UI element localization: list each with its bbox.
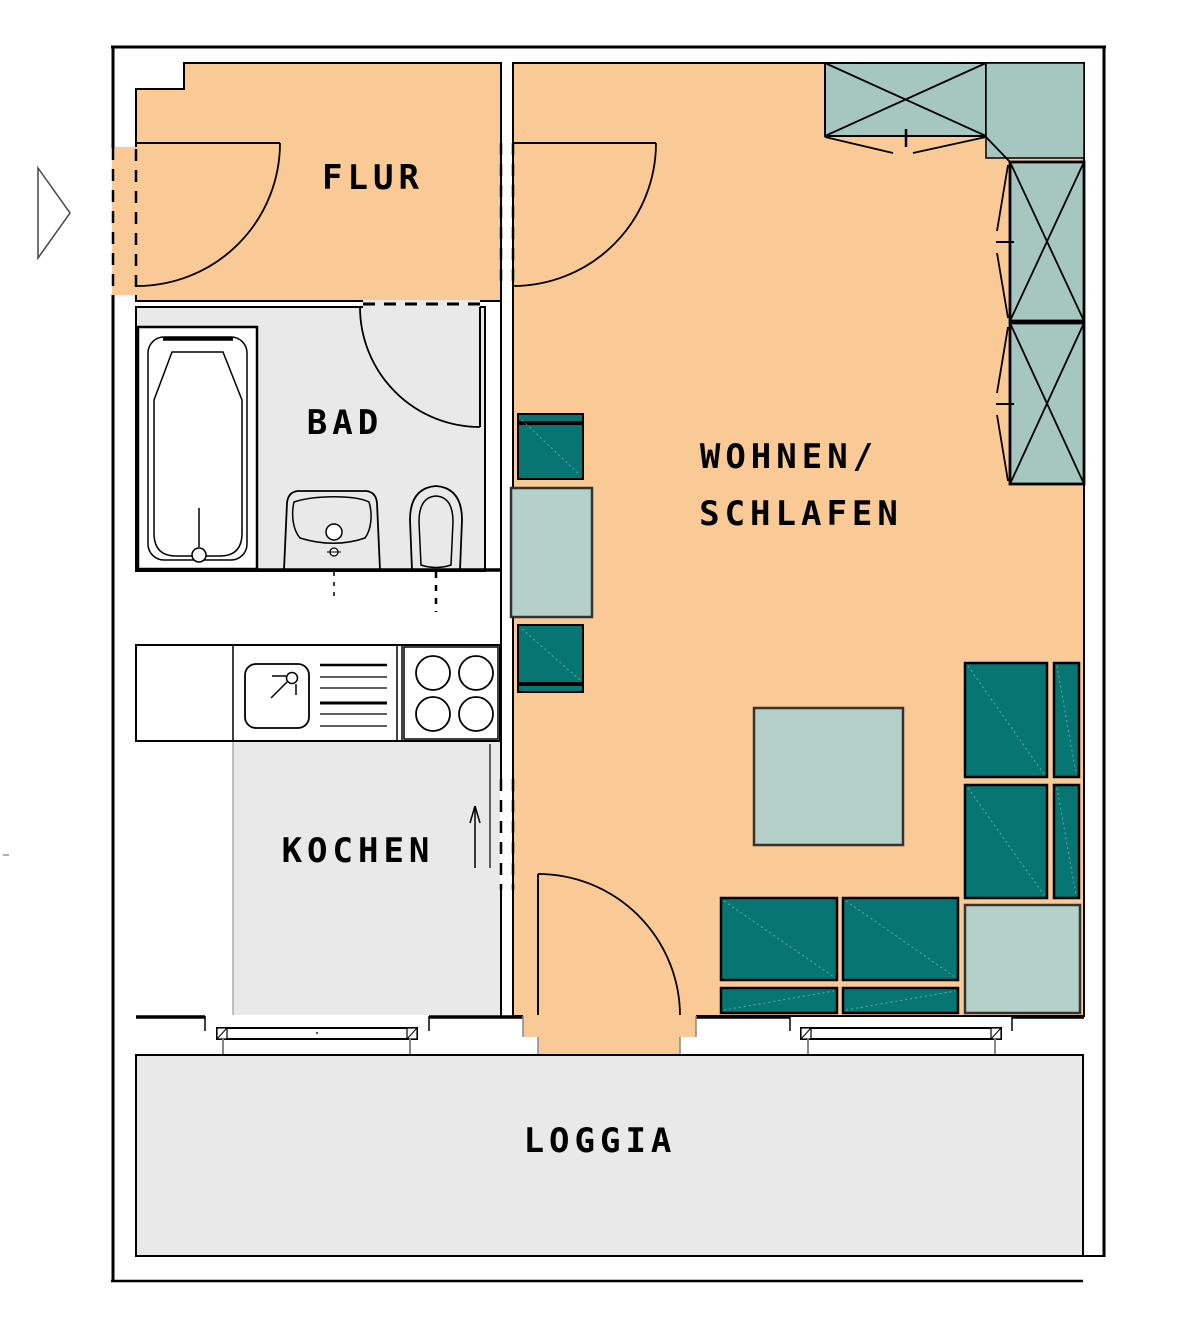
entrance-arrow-icon [38, 168, 70, 258]
loggia-label: LOGGIA [524, 1121, 677, 1161]
bad-label: BAD [307, 403, 383, 443]
room-floors [112, 63, 1084, 1256]
living-window-icon [790, 1016, 1012, 1054]
bad-door-opening [363, 300, 480, 310]
wohnen-label-line2: SCHLAFEN [699, 494, 903, 534]
bottom-wall [136, 1015, 1084, 1054]
kochen-label: KOCHEN [282, 831, 435, 871]
bathtub-icon [138, 327, 257, 569]
floor-plan: FLUR BAD KOCHEN WOHNEN/ SCHLAFEN LOGGIA [0, 0, 1179, 1331]
wardrobe-corner [986, 63, 1084, 163]
corner-table [965, 905, 1080, 1013]
kitchen-sink-icon [245, 664, 309, 728]
loggia-doorway [523, 1015, 696, 1054]
dining-table [511, 488, 592, 617]
coffee-table [754, 708, 903, 845]
kochen-floor [233, 741, 500, 1015]
stove-icon [404, 647, 498, 739]
wohnen-label-line1: WOHNEN/ [700, 437, 878, 477]
wardrobe-right-2 [996, 323, 1084, 484]
dining-chair-bottom [518, 625, 583, 692]
flur-label: FLUR [322, 158, 424, 198]
flur-floor [136, 63, 501, 301]
wardrobe-right-1 [996, 162, 1084, 321]
dining-chair-top [518, 414, 583, 479]
kitchen-window-icon [205, 1016, 429, 1054]
drainer-icon [320, 665, 387, 726]
